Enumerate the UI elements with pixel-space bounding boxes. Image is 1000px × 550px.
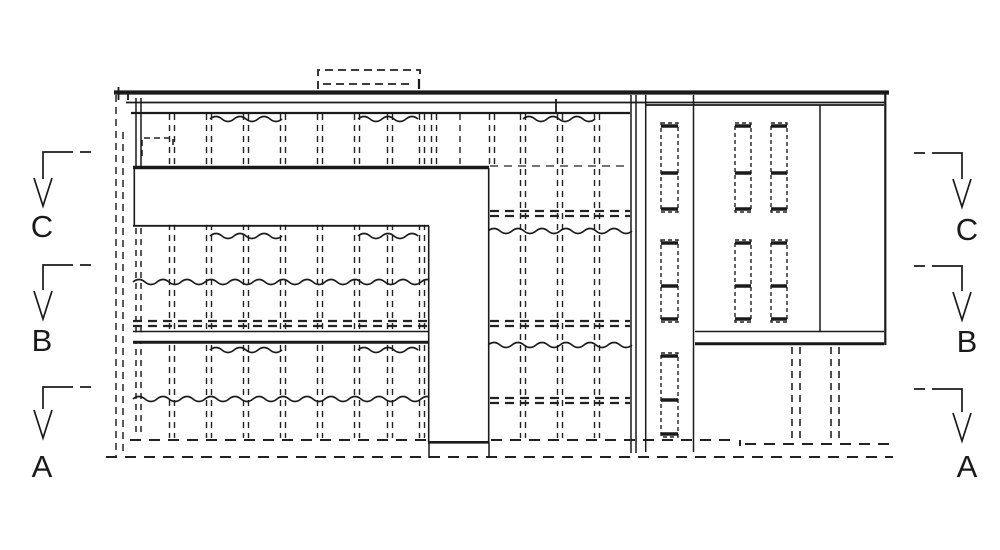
section-label-left-a: A <box>32 449 53 484</box>
slab-band-and-pier <box>133 167 490 458</box>
slot-window-bars <box>661 126 787 434</box>
slot-window-frames <box>661 123 787 437</box>
section-label-left-b: B <box>32 323 53 358</box>
left-hidden-edge-lines <box>116 95 123 456</box>
section-label-right-a: A <box>957 449 978 484</box>
section-markers-left: C B A <box>31 152 91 484</box>
section-cut-elbows-left <box>43 152 91 409</box>
ground-lines <box>106 440 893 457</box>
sill-bands <box>133 211 630 403</box>
stair-pier-fill <box>430 168 488 442</box>
section-cut-elbows-right <box>914 153 962 412</box>
front-left-wall-solid <box>136 98 141 166</box>
floor-band-fill <box>134 332 427 341</box>
stair-pier-feet <box>429 442 489 458</box>
elevation-drawing-canvas: C B A C B A <box>0 0 1000 550</box>
section-markers-right: C B A <box>914 153 978 484</box>
corner-column-lines <box>631 95 636 453</box>
mullion-lines <box>170 114 600 438</box>
section-label-left-c: C <box>31 209 53 244</box>
building-elevation-drawing: C B A C B A <box>0 0 1000 550</box>
wing-hidden-piers <box>792 347 839 442</box>
section-label-right-b: B <box>957 324 978 359</box>
right-wing <box>631 92 885 453</box>
small-dashed-box <box>142 138 173 156</box>
section-label-right-c: C <box>956 212 978 247</box>
top-floor-mullion-lines <box>432 114 495 164</box>
roof-parapet <box>114 87 889 113</box>
rooftop-dashed-outline <box>318 70 420 89</box>
rooftop-structure <box>318 70 420 89</box>
ground-dashed-lines <box>106 440 893 457</box>
curtain-wall-grid <box>116 95 632 456</box>
